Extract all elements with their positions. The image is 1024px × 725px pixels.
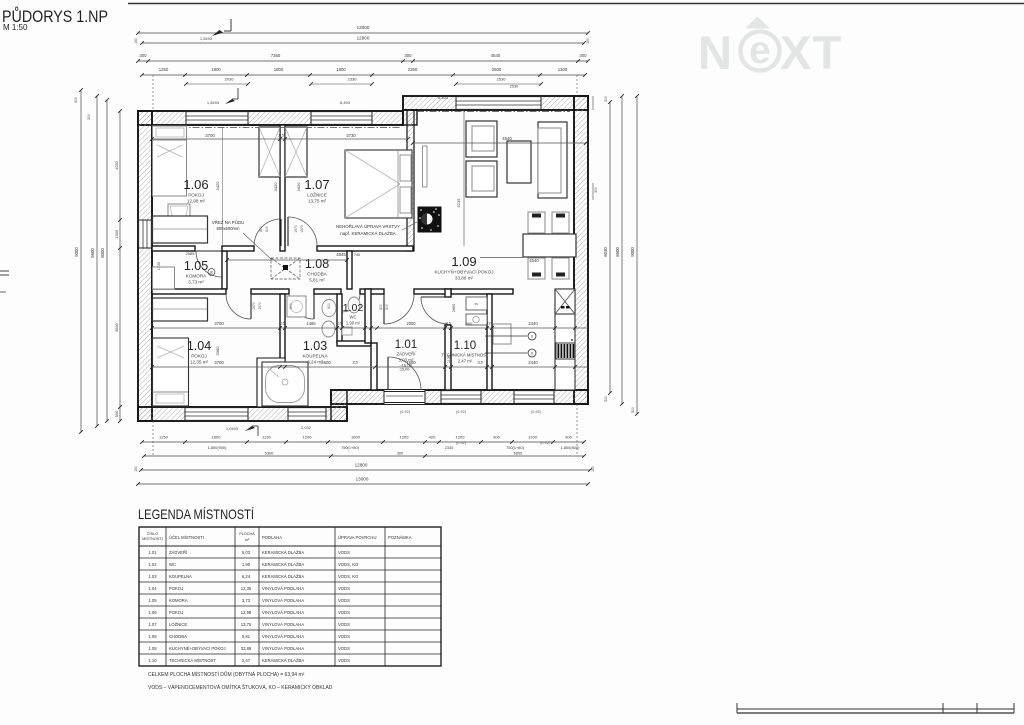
svg-text:300: 300	[397, 451, 404, 456]
svg-text:12,98: 12,98	[241, 610, 252, 615]
svg-text:POKOJ: POKOJ	[169, 586, 183, 591]
svg-text:2530: 2530	[510, 85, 518, 89]
svg-text:ZÁDVEŘÍ: ZÁDVEŘÍ	[396, 352, 416, 357]
svg-text:300: 300	[604, 396, 608, 402]
svg-text:900: 900	[565, 435, 572, 440]
svg-text:VINYLOVÁ PODLAHA: VINYLOVÁ PODLAHA	[262, 586, 304, 591]
svg-text:(0,92): (0,92)	[540, 441, 551, 445]
svg-text:TECHNICKÁ MÍSTNOST: TECHNICKÁ MÍSTNOST	[169, 658, 216, 663]
svg-text:1.09: 1.09	[148, 646, 157, 651]
svg-text:115: 115	[487, 322, 493, 326]
svg-text:1,5493: 1,5493	[200, 36, 213, 41]
svg-text:(0,92): (0,92)	[400, 410, 411, 414]
svg-text:115: 115	[336, 322, 342, 326]
svg-text:2030: 2030	[225, 77, 235, 82]
svg-text:ÚPRAVA POVRCHU: ÚPRAVA POVRCHU	[338, 535, 376, 540]
svg-text:1250: 1250	[159, 435, 169, 440]
svg-text:VINYLOVÁ PODLAHA: VINYLOVÁ PODLAHA	[262, 610, 304, 615]
svg-text:m²: m²	[245, 538, 250, 542]
svg-text:3380: 3380	[215, 346, 220, 356]
svg-text:13000: 13000	[356, 477, 369, 482]
svg-text:4540: 4540	[502, 136, 512, 141]
svg-text:1.06: 1.06	[183, 177, 208, 192]
svg-text:1600: 1600	[351, 435, 361, 440]
svg-text:2330: 2330	[445, 445, 454, 450]
svg-text:800x600mm: 800x600mm	[216, 226, 240, 231]
svg-text:MÍSTNOSTI: MÍSTNOSTI	[142, 537, 163, 541]
svg-text:115: 115	[445, 322, 451, 326]
svg-text:VODS: VODS	[338, 622, 350, 627]
svg-text:6: 6	[531, 352, 533, 356]
svg-text:12800: 12800	[357, 36, 370, 41]
svg-text:1500: 1500	[406, 360, 416, 365]
svg-text:1.09: 1.09	[451, 254, 476, 269]
svg-text:4540: 4540	[529, 258, 539, 263]
svg-text:N: N	[698, 26, 732, 79]
svg-text:2530: 2530	[497, 77, 507, 82]
svg-text:1800: 1800	[212, 435, 222, 440]
svg-text:1.04: 1.04	[187, 339, 211, 353]
svg-text:2,47 m²: 2,47 m²	[458, 359, 473, 364]
svg-text:8,493: 8,493	[438, 95, 449, 100]
svg-text:12,98 m²: 12,98 m²	[187, 199, 206, 204]
svg-text:VODS: VODS	[338, 658, 350, 663]
svg-text:1720: 1720	[157, 262, 161, 270]
svg-text:1.03: 1.03	[303, 339, 327, 353]
svg-text:1200: 1200	[303, 435, 313, 440]
svg-text:1.05: 1.05	[148, 598, 157, 603]
svg-text:800: 800	[265, 226, 269, 232]
svg-text:(0,92): (0,92)	[456, 410, 467, 414]
svg-text:1,90 m²: 1,90 m²	[346, 321, 361, 326]
svg-text:X: X	[780, 26, 811, 79]
svg-text:CHODBA: CHODBA	[307, 272, 328, 277]
svg-text:5300: 5300	[265, 451, 274, 456]
svg-text:1.01: 1.01	[148, 550, 157, 555]
svg-text:2585: 2585	[186, 251, 196, 256]
svg-text:1800: 1800	[274, 67, 284, 72]
svg-text:33,88 m²: 33,88 m²	[455, 276, 474, 281]
svg-text:2440: 2440	[528, 321, 538, 326]
svg-text:5,81: 5,81	[242, 634, 251, 639]
svg-text:3,73: 3,73	[242, 598, 251, 603]
svg-text:115: 115	[352, 361, 358, 365]
svg-text:1.800(900): 1.800(900)	[208, 445, 228, 450]
svg-text:8030: 8030	[603, 247, 608, 257]
svg-text:VINYLOVÁ PODLAHA: VINYLOVÁ PODLAHA	[262, 622, 304, 627]
svg-text:300: 300	[404, 53, 412, 58]
svg-text:900: 900	[493, 435, 500, 440]
svg-text:POKOJ: POKOJ	[169, 610, 183, 615]
svg-text:8600: 8600	[615, 247, 620, 257]
svg-text:6,24: 6,24	[242, 574, 251, 579]
svg-text:2,47: 2,47	[242, 658, 251, 663]
svg-text:KOMORA: KOMORA	[169, 598, 188, 603]
svg-text:ÚČEL MÍSTNOSTI: ÚČEL MÍSTNOSTI	[169, 535, 204, 540]
svg-text:CHODBA: CHODBA	[169, 634, 187, 639]
svg-text:9000: 9000	[74, 247, 79, 257]
svg-text:13,75 m²: 13,75 m²	[308, 199, 327, 204]
svg-text:30: 30	[210, 271, 214, 275]
svg-text:(0,92): (0,92)	[531, 410, 542, 414]
svg-text:13000: 13000	[357, 25, 370, 30]
svg-text:3420: 3420	[215, 181, 220, 191]
svg-text:KERAMICKÁ DLAŽBA: KERAMICKÁ DLAŽBA	[262, 550, 304, 555]
svg-text:13,75: 13,75	[241, 622, 252, 627]
svg-text:KOUPELNA: KOUPELNA	[169, 574, 192, 579]
svg-text:1200: 1200	[400, 435, 410, 440]
svg-text:kv: kv	[475, 302, 479, 306]
svg-text:1130: 1130	[262, 435, 271, 440]
svg-text:VINYLOVÁ PODLAHA: VINYLOVÁ PODLAHA	[262, 634, 304, 639]
svg-text:LOŽNICE: LOŽNICE	[307, 191, 327, 198]
svg-text:1.08: 1.08	[148, 634, 157, 639]
svg-text:500: 500	[74, 97, 78, 103]
svg-text:WC: WC	[350, 315, 357, 320]
svg-text:800: 800	[379, 304, 383, 310]
svg-text:1250: 1250	[159, 67, 169, 72]
svg-text:ČÍSLO: ČÍSLO	[147, 531, 158, 536]
svg-text:1300: 1300	[558, 67, 568, 72]
svg-text:800: 800	[466, 321, 473, 326]
svg-text:WC: WC	[169, 562, 176, 567]
svg-text:1.06: 1.06	[148, 610, 157, 615]
svg-text:KUCHYŇ+OBÝVACÍ POKOJ: KUCHYŇ+OBÝVACÍ POKOJ	[434, 269, 493, 275]
svg-text:1200: 1200	[528, 435, 538, 440]
svg-text:1970: 1970	[300, 225, 304, 233]
svg-text:150: 150	[591, 466, 595, 472]
svg-text:CELKEM PLOCHA MÍSTNOSTÍ DŮM: CELKEM PLOCHA MÍSTNOSTÍ DŮM (OBYTNÁ PLOC…	[148, 671, 305, 678]
svg-text:1800: 1800	[336, 67, 346, 72]
svg-text:115: 115	[278, 134, 284, 138]
svg-text:M 1:50: M 1:50	[3, 23, 28, 32]
svg-text:VODS: VODS	[338, 586, 350, 591]
svg-text:3700: 3700	[205, 133, 215, 138]
svg-text:150: 150	[134, 466, 138, 472]
svg-text:VODS: VODS	[338, 634, 350, 639]
svg-text:33,88: 33,88	[241, 646, 252, 651]
svg-text:1485: 1485	[306, 321, 316, 326]
svg-text:4030: 4030	[114, 160, 119, 169]
svg-text:300: 300	[87, 114, 91, 120]
svg-text:1,90: 1,90	[242, 562, 251, 567]
svg-text:800: 800	[385, 304, 389, 310]
svg-text:9000: 9000	[630, 247, 635, 257]
svg-text:745: 745	[354, 253, 360, 257]
svg-text:2600: 2600	[321, 360, 331, 365]
svg-text:1.07: 1.07	[304, 177, 329, 192]
svg-text:VODS, KO: VODS, KO	[338, 574, 359, 579]
svg-text:3,73 m²: 3,73 m²	[188, 280, 204, 285]
svg-text:1200: 1200	[456, 435, 466, 440]
svg-text:VODS: VODS	[338, 610, 350, 615]
svg-text:POKOJ: POKOJ	[188, 193, 204, 198]
svg-text:1.02: 1.02	[343, 302, 364, 314]
svg-text:1.10: 1.10	[148, 658, 157, 663]
svg-text:750(1+80): 750(1+80)	[506, 445, 525, 450]
svg-text:1000: 1000	[114, 229, 119, 238]
svg-text:300: 300	[604, 96, 608, 102]
svg-text:(0,92): (0,92)	[456, 441, 467, 445]
svg-text:6600: 6600	[514, 451, 523, 456]
svg-text:12,35: 12,35	[241, 586, 252, 591]
svg-text:300: 300	[579, 53, 587, 58]
svg-text:KERAMICKÁ DLAŽBA: KERAMICKÁ DLAŽBA	[262, 658, 304, 663]
svg-text:300: 300	[139, 53, 147, 58]
svg-text:2440: 2440	[528, 360, 538, 365]
svg-text:1.03: 1.03	[148, 574, 157, 579]
svg-text:1800: 1800	[211, 67, 221, 72]
svg-text:500: 500	[631, 407, 635, 413]
svg-text:2350: 2350	[408, 67, 418, 72]
svg-text:8000: 8000	[100, 248, 105, 258]
svg-text:T: T	[813, 26, 842, 79]
svg-text:300: 300	[594, 187, 598, 193]
svg-text:800: 800	[327, 303, 331, 309]
svg-text:5,81 m²: 5,81 m²	[309, 278, 325, 283]
svg-text:12800: 12800	[355, 463, 368, 468]
svg-text:1,0493: 1,0493	[226, 426, 239, 431]
svg-text:VODS – VÁPENOCEMENTOVÁ OMÍTK: VODS – VÁPENOCEMENTOVÁ OMÍTKA ŠTUKOVÁ, K…	[148, 684, 333, 691]
svg-text:3830: 3830	[114, 322, 119, 331]
svg-text:420: 420	[429, 435, 436, 440]
svg-text:2850: 2850	[452, 304, 456, 312]
svg-text:1135: 1135	[447, 355, 451, 363]
svg-text:1,5493: 1,5493	[207, 100, 220, 105]
svg-text:115: 115	[279, 322, 285, 326]
svg-text:1.01: 1.01	[395, 339, 417, 351]
svg-text:8,493: 8,493	[340, 100, 351, 105]
svg-text:800: 800	[259, 226, 263, 232]
svg-text:1.08: 1.08	[305, 257, 329, 271]
svg-text:115: 115	[477, 361, 483, 365]
svg-text:750(1+80): 750(1+80)	[341, 445, 360, 450]
svg-text:8600: 8600	[90, 248, 95, 258]
svg-text:VODS: VODS	[338, 598, 350, 603]
svg-text:ZÁDVEŘÍ: ZÁDVEŘÍ	[169, 550, 188, 555]
svg-text:7360: 7360	[271, 53, 281, 58]
svg-text:2500: 2500	[492, 67, 502, 72]
svg-text:PODLAHA: PODLAHA	[262, 535, 282, 540]
svg-text:POKOJ: POKOJ	[191, 354, 207, 359]
svg-text:NEHOŘLAVÁ ÚPRAVA VRSTVY: NEHOŘLAVÁ ÚPRAVA VRSTVY	[336, 224, 400, 229]
svg-text:3420: 3420	[273, 182, 278, 192]
svg-text:500: 500	[114, 410, 119, 417]
svg-text:12,35 m²: 12,35 m²	[190, 360, 209, 365]
svg-text:LOŽNICE: LOŽNICE	[169, 622, 187, 627]
svg-text:1.10: 1.10	[454, 340, 476, 352]
svg-text:VŘEZ NA PŮDU: VŘEZ NA PŮDU	[212, 220, 244, 225]
svg-text:3700: 3700	[214, 321, 224, 326]
svg-text:KERAMICKÁ DLAŽBA: KERAMICKÁ DLAŽBA	[262, 562, 304, 567]
svg-text:POZNÁMKA: POZNÁMKA	[388, 535, 412, 540]
svg-text:800: 800	[289, 303, 293, 309]
svg-text:3730: 3730	[346, 133, 356, 138]
svg-text:-15,00: -15,00	[399, 368, 410, 372]
svg-text:KUCHYNĚ+OBÝVACÍ POKOJ: KUCHYNĚ+OBÝVACÍ POKOJ	[169, 646, 226, 651]
svg-text:150: 150	[586, 38, 590, 44]
svg-text:5235: 5235	[456, 198, 461, 208]
svg-text:VODS: VODS	[338, 550, 350, 555]
svg-text:KERAMICKÁ DLAŽBA: KERAMICKÁ DLAŽBA	[262, 574, 304, 579]
svg-text:KOMORA: KOMORA	[186, 274, 207, 279]
svg-text:e: e	[749, 29, 771, 72]
svg-text:1.05: 1.05	[184, 259, 208, 273]
svg-text:PLOCHA: PLOCHA	[239, 532, 255, 536]
svg-text:150: 150	[134, 38, 138, 44]
svg-text:1.07: 1.07	[148, 622, 157, 627]
svg-text:KOUPELNA: KOUPELNA	[302, 354, 328, 359]
svg-text:VINYLOVÁ PODLAHA: VINYLOVÁ PODLAHA	[262, 598, 304, 603]
svg-text:1.02: 1.02	[148, 562, 157, 567]
svg-text:3420: 3420	[296, 182, 301, 192]
svg-text:1970: 1970	[258, 302, 262, 310]
svg-text:2,032: 2,032	[301, 425, 312, 430]
svg-text:4540: 4540	[491, 53, 501, 58]
svg-text:LEGENDA MÍSTNOSTÍ: LEGENDA MÍSTNOSTÍ	[138, 506, 254, 522]
svg-text:VODS: VODS	[338, 646, 350, 651]
svg-text:1.04: 1.04	[148, 586, 157, 591]
svg-text:1970: 1970	[294, 225, 298, 233]
svg-text:5,03: 5,03	[242, 550, 251, 555]
svg-text:VODS, KO: VODS, KO	[338, 562, 359, 567]
svg-text:1970: 1970	[252, 302, 256, 310]
svg-text:např. KERAMICKÁ DLAŽBA: např. KERAMICKÁ DLAŽBA	[340, 231, 395, 236]
svg-text:3700: 3700	[214, 360, 224, 365]
svg-text:VINYLOVÁ PODLAHA: VINYLOVÁ PODLAHA	[262, 646, 304, 651]
svg-text:2330: 2330	[348, 77, 358, 82]
svg-text:4845: 4845	[336, 252, 346, 257]
svg-text:2000: 2000	[406, 321, 416, 326]
svg-text:6: 6	[531, 335, 533, 339]
